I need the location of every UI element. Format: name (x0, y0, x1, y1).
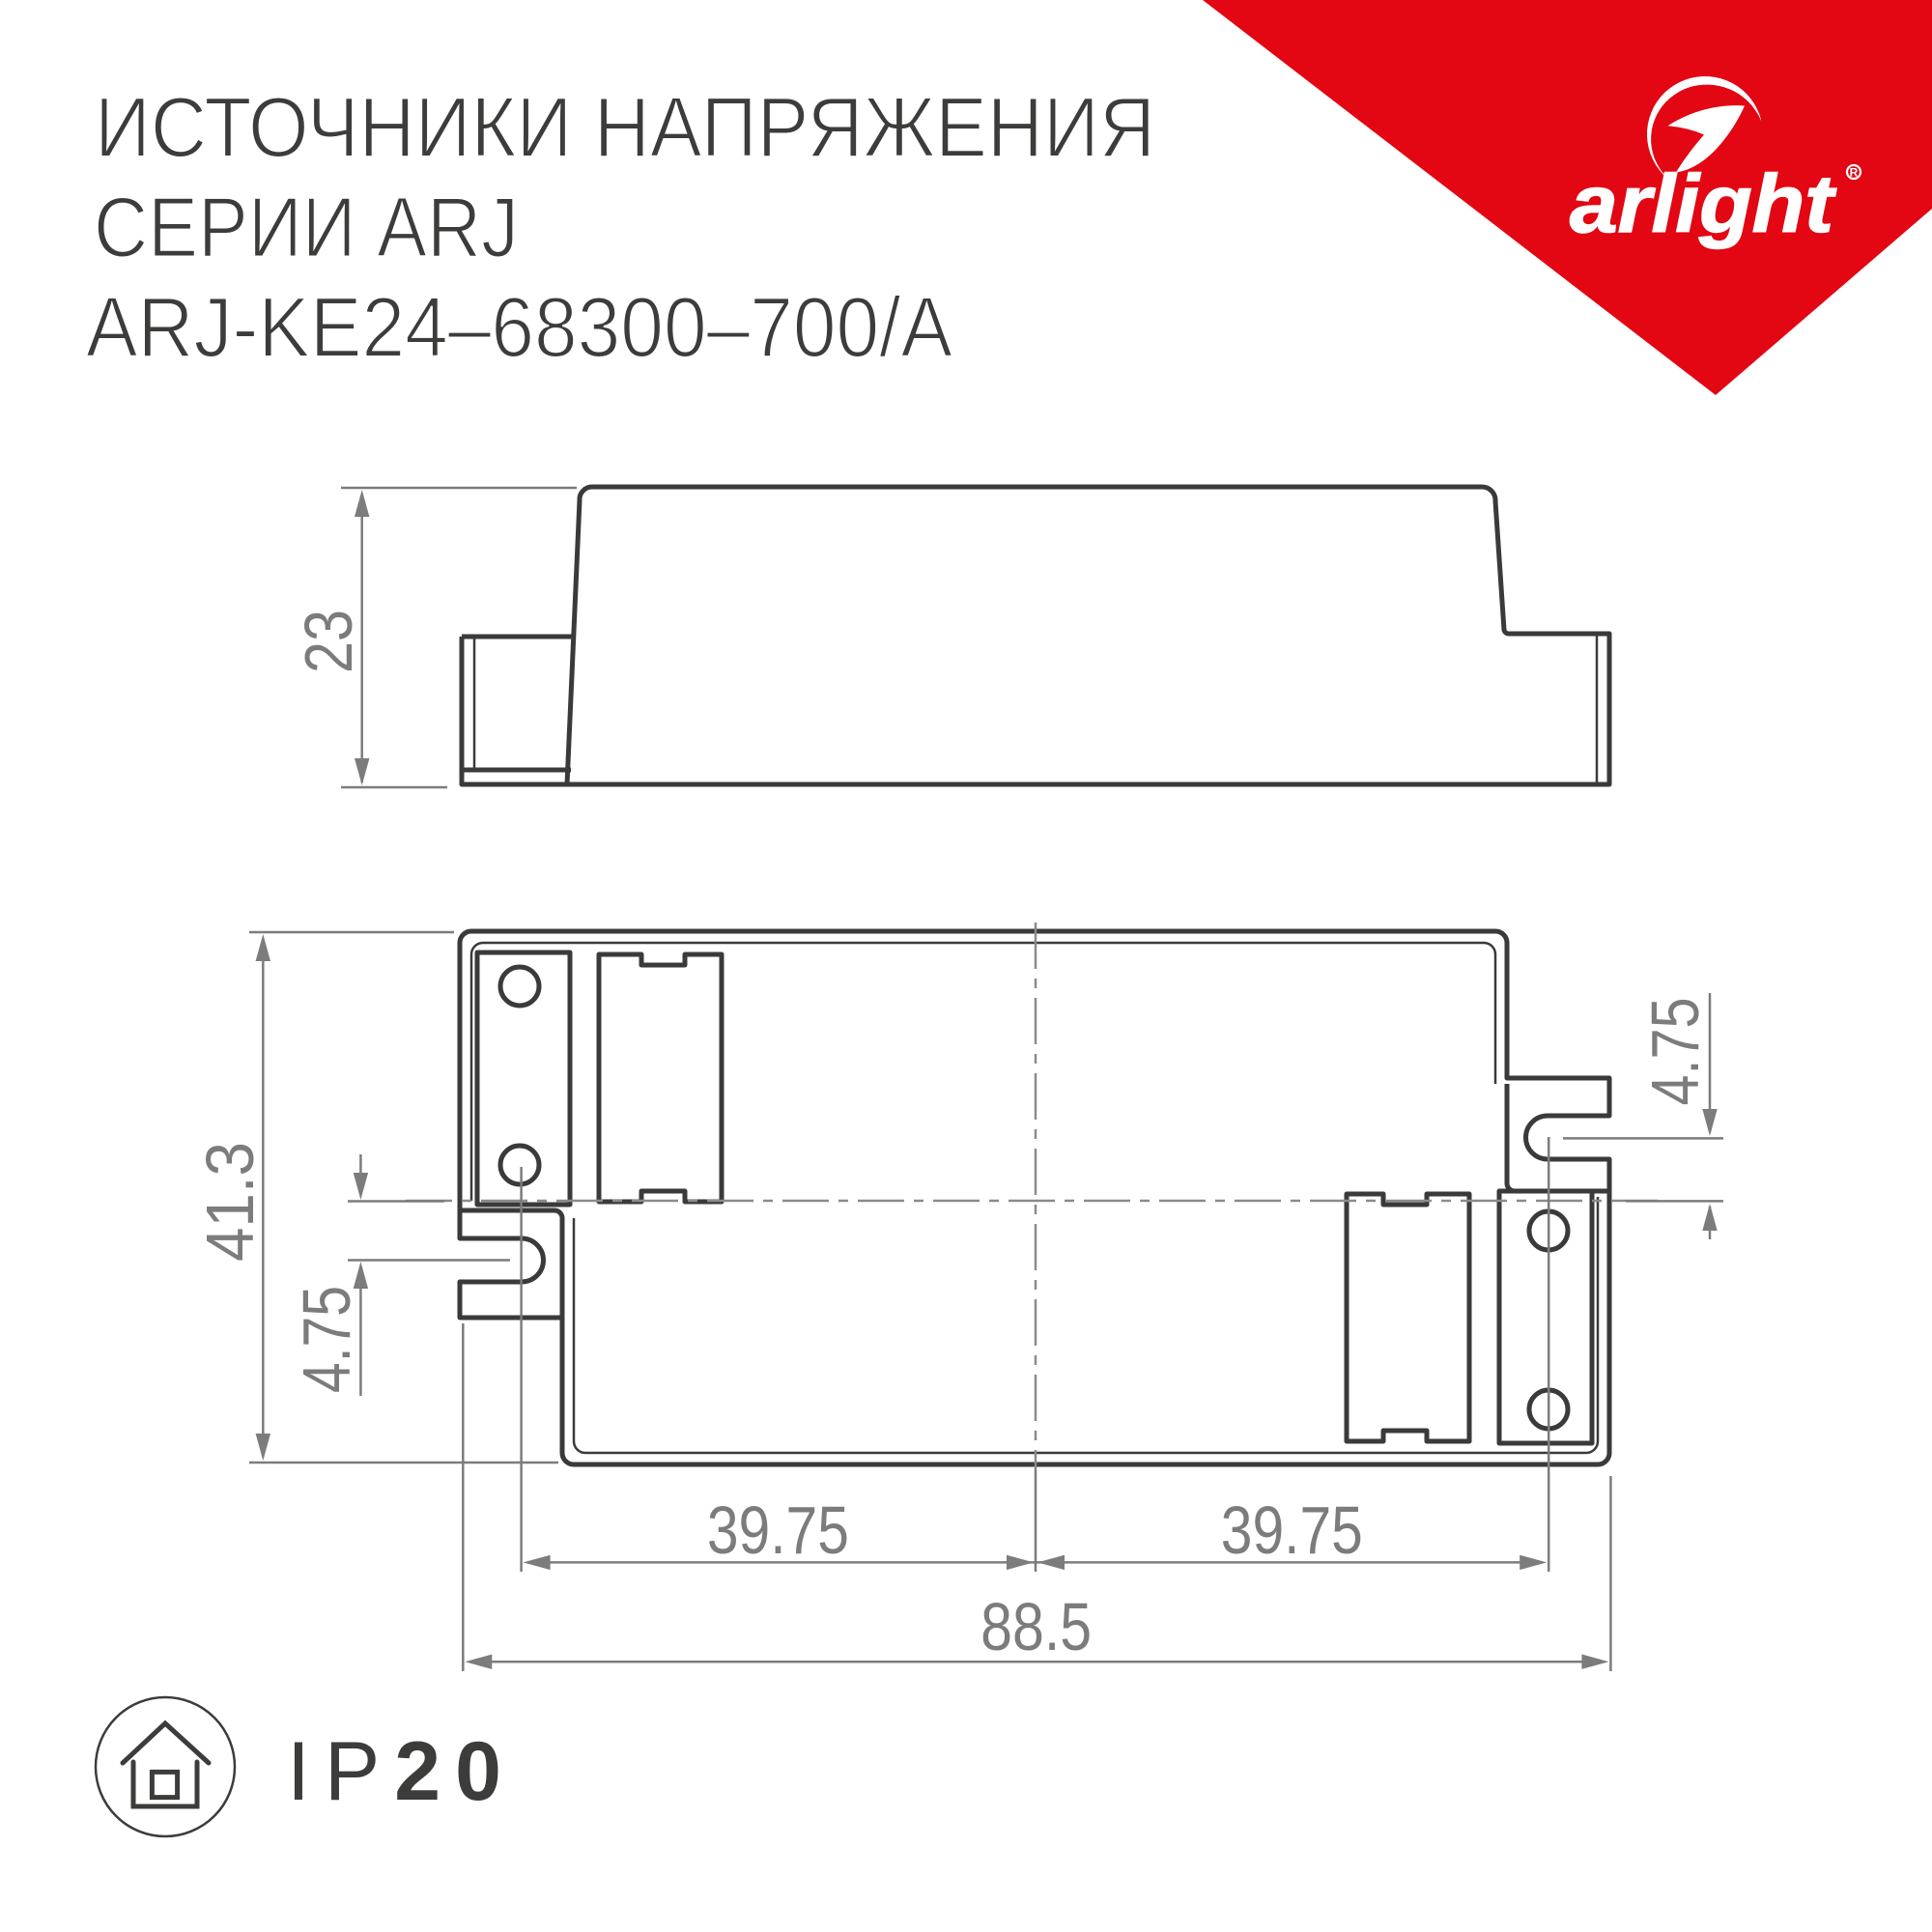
svg-text:ИСТОЧНИКИ НАПРЯЖЕНИЯ: ИСТОЧНИКИ НАПРЯЖЕНИЯ (95, 79, 1155, 175)
svg-text:39.75: 39.75 (707, 1492, 849, 1568)
svg-text:23: 23 (291, 610, 366, 673)
svg-text:4.75: 4.75 (1637, 998, 1713, 1106)
svg-text:R: R (1850, 166, 1859, 180)
svg-text:IP20: IP20 (287, 1725, 516, 1818)
svg-text:88.5: 88.5 (980, 1589, 1092, 1664)
svg-text:СЕРИИ ARJ: СЕРИИ ARJ (94, 180, 519, 275)
svg-text:ARJ-KE24–68300–700/А: ARJ-KE24–68300–700/А (86, 279, 952, 375)
svg-text:39.75: 39.75 (1221, 1492, 1363, 1568)
svg-text:arlight: arlight (1570, 158, 1836, 249)
svg-text:4.75: 4.75 (289, 1286, 364, 1393)
svg-text:41.3: 41.3 (192, 1142, 268, 1262)
